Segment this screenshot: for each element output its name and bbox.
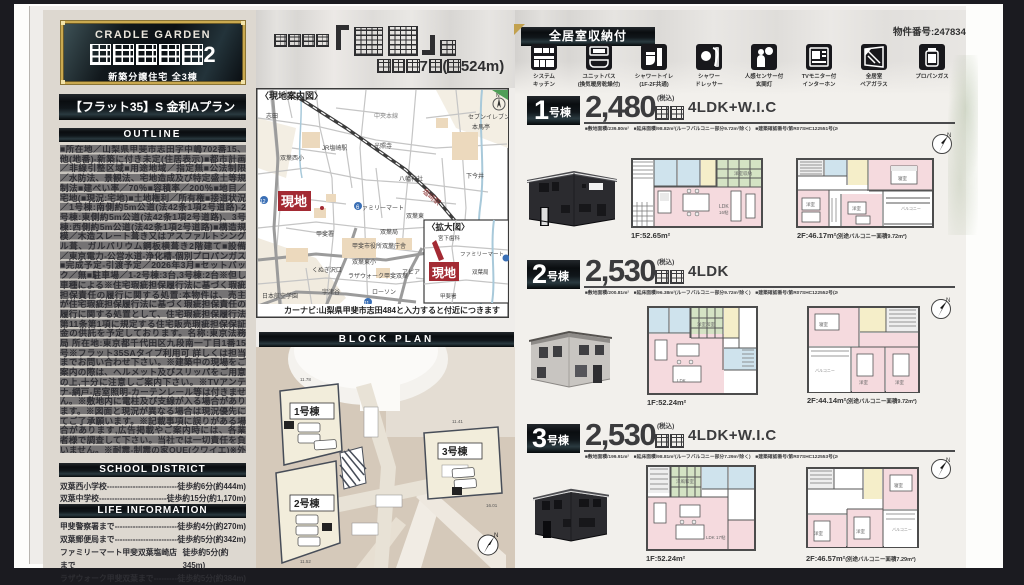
svg-text:下今井: 下今井	[466, 172, 484, 180]
svg-text:八幡神社: 八幡神社	[399, 175, 423, 183]
svg-text:3号棟: 3号棟	[442, 445, 469, 458]
svg-text:双葉東: 双葉東	[406, 212, 424, 220]
svg-text:12: 12	[260, 199, 266, 205]
svg-text:宮下歯科: 宮下歯科	[438, 234, 461, 242]
svg-text:16帖: 16帖	[719, 209, 729, 216]
svg-text:N: N	[494, 533, 498, 539]
svg-text:宇津谷: 宇津谷	[322, 288, 340, 296]
svg-text:双葉東小: 双葉東小	[352, 258, 376, 266]
svg-text:くぬぎ沢口: くぬぎ沢口	[312, 266, 342, 274]
svg-text:N: N	[946, 458, 950, 464]
svg-text:16.01: 16.01	[486, 503, 498, 508]
svg-text:双葉局: 双葉局	[380, 228, 398, 236]
svg-text:ファミリーマート: ファミリーマート	[460, 251, 504, 258]
svg-text:バルコニー: バルコニー	[892, 527, 912, 532]
svg-text:2号棟: 2号棟	[294, 497, 321, 510]
svg-text:洋室: 洋室	[856, 528, 865, 535]
svg-text:LDK 17帖: LDK 17帖	[706, 534, 726, 541]
svg-text:本馬亭: 本馬亭	[472, 123, 490, 131]
svg-text:ファミリーマート: ファミリーマート	[356, 205, 404, 212]
svg-text:寝室: 寝室	[894, 482, 903, 488]
svg-text:バルコニー: バルコニー	[901, 206, 921, 211]
svg-text:バルコニー: バルコニー	[815, 368, 835, 373]
svg-text:甲斐署: 甲斐署	[440, 292, 457, 300]
svg-text:カーナビ:山梨県甲斐市志田484と入力すると付近につきます: カーナビ:山梨県甲斐市志田484と入力すると付近につきます	[284, 305, 500, 315]
svg-text:洋室: 洋室	[806, 201, 815, 208]
svg-text:現地: 現地	[281, 194, 307, 209]
svg-text:セブンイレブン: セブンイレブン	[468, 113, 509, 121]
svg-text:JR塩崎駅: JR塩崎駅	[322, 144, 347, 152]
svg-text:アピア: アピア	[402, 269, 420, 276]
svg-text:〈拡大図〉: 〈拡大図〉	[427, 222, 470, 232]
svg-text:寝室: 寝室	[898, 175, 907, 181]
svg-text:現地: 現地	[432, 265, 456, 280]
svg-text:洋室: 洋室	[859, 379, 868, 386]
svg-text:洋室収納: 洋室収納	[734, 170, 752, 177]
svg-text:ラザウォーク甲斐双葉: ラザウォーク甲斐双葉	[348, 272, 408, 280]
svg-text:洋室和室: 洋室和室	[697, 321, 715, 328]
svg-text:洋室: 洋室	[814, 530, 823, 537]
svg-text:11.52: 11.52	[300, 559, 311, 564]
svg-text:甲斐市役所双葉庁舎: 甲斐市役所双葉庁舎	[352, 242, 406, 250]
svg-text:11.41: 11.41	[452, 419, 463, 424]
svg-text:N: N	[947, 133, 951, 139]
svg-text:N: N	[946, 298, 950, 304]
svg-text:洋室: 洋室	[895, 379, 904, 386]
svg-text:志田: 志田	[266, 112, 278, 120]
svg-text:双葉西小: 双葉西小	[280, 154, 304, 162]
svg-text:寝室: 寝室	[819, 321, 828, 327]
svg-text:〈現地案内図〉: 〈現地案内図〉	[260, 90, 323, 101]
svg-text:光照寺: 光照寺	[374, 142, 392, 150]
svg-text:双葉局: 双葉局	[472, 268, 489, 276]
svg-text:洋風和室: 洋風和室	[676, 478, 694, 485]
svg-text:日本航空学園: 日本航空学園	[262, 292, 298, 300]
svg-text:洋室: 洋室	[852, 205, 861, 212]
svg-text:中央本線: 中央本線	[374, 112, 398, 120]
svg-text:11.78: 11.78	[300, 377, 311, 382]
svg-text:LDK: LDK	[677, 378, 686, 383]
svg-text:甲斐署: 甲斐署	[316, 230, 334, 238]
svg-text:1号棟: 1号棟	[294, 405, 321, 418]
svg-text:ローソン: ローソン	[372, 290, 396, 296]
